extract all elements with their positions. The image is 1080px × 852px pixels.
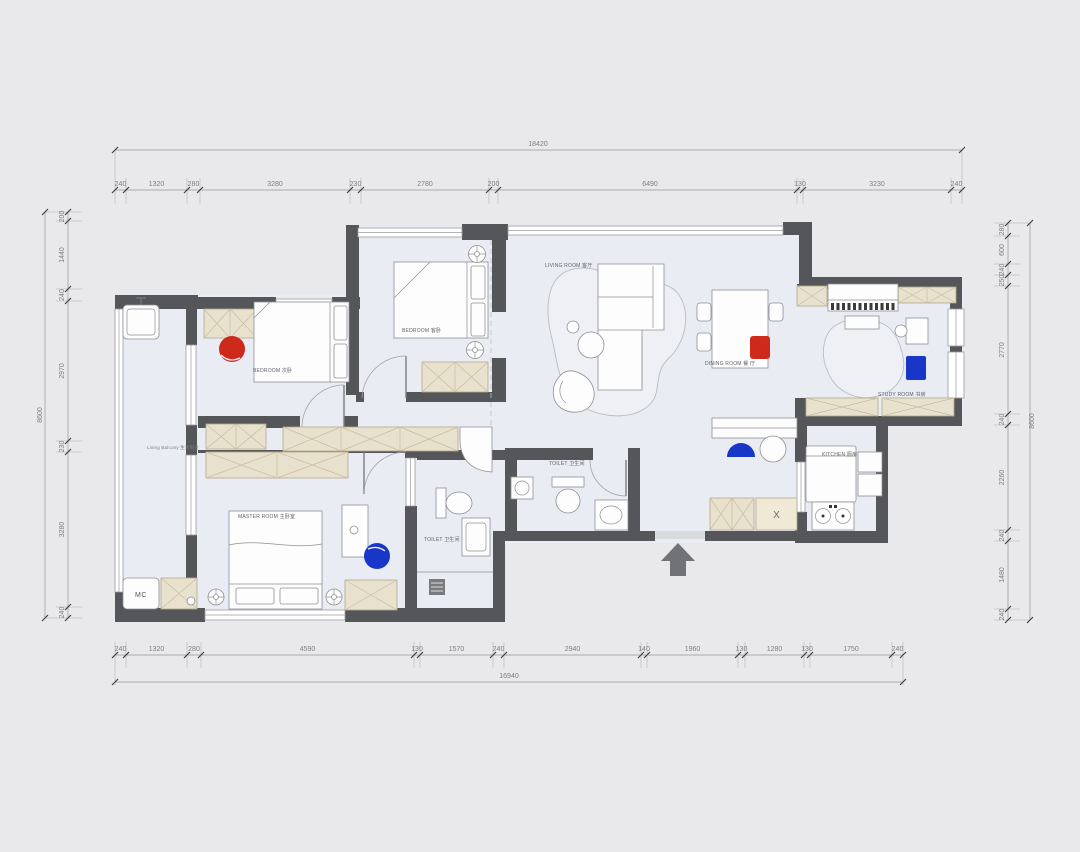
dimension-chain-left: 8600 200 1440 240 2970 230 3280 240 [37,209,82,621]
dim: 3280 [267,181,283,188]
washing-machine-marker: MC [135,592,147,599]
red-chair [750,336,770,359]
dim: 1320 [149,646,165,653]
bedside-lamp-icon [326,589,342,605]
room-label-bedroom-left: BEDROOM 次卧 [253,367,292,374]
dim: 240 [951,181,963,188]
dimension-chain-top: 18420 240 1320 280 3280 230 2780 200 649… [112,141,965,204]
room-label-master: MASTER ROOM 主卧室 [238,513,295,520]
room-label-bedroom-top: BEDROOM 客卧 [402,327,441,334]
ceiling-fan-icon [467,342,484,359]
dim: 2260 [999,470,1006,486]
dim: 1570 [449,646,465,653]
room-label-dining: DINING ROOM 餐 厅 [705,360,755,367]
dim: 240 [999,530,1006,542]
dim: 130 [411,646,423,653]
floor-plan-page: X MC [0,0,1080,852]
dim: 240 [999,609,1006,621]
dim: 130 [794,181,806,188]
fridge-marker: X [773,510,780,521]
dim: 6490 [642,181,658,188]
room-label-kitchen: KITCHEN 厨房 [822,451,857,458]
dim: 1280 [767,646,783,653]
dim: 240 [115,181,127,188]
red-chair [219,336,245,362]
dim: 240 [59,607,66,619]
dim: 200 [59,211,66,223]
dim: 130 [801,646,813,653]
dim: 280 [188,181,200,188]
entry-arrow-icon [661,543,695,576]
dim: 1320 [149,181,165,188]
dim: 1440 [59,247,66,263]
dim: 3230 [869,181,885,188]
dim: 1480 [999,567,1006,583]
dim: 230 [59,441,66,453]
dim: 2940 [565,646,581,653]
dim-right-total: 8600 [1029,413,1036,429]
room-label-study: STUDY ROOM 书房 [878,391,926,398]
dim: 240 [59,289,66,301]
bedside-lamp-icon [208,589,224,605]
dim: 240 [999,264,1006,276]
room-label-living-balcony: Living Balcony 生活阳台 [147,444,199,451]
dim: 2770 [999,342,1006,358]
dim: 250 [999,275,1006,287]
dim: 240 [999,414,1006,426]
dim-left-total: 8600 [37,407,44,423]
dim: 1960 [685,646,701,653]
dim: 600 [999,244,1006,256]
dim: 240 [493,646,505,653]
dim: 130 [736,646,748,653]
blue-chair [906,356,926,380]
dimension-chain-bottom: 16940 240 1320 280 4590 130 1570 240 294… [112,642,906,685]
room-label-living: LIVING ROOM 客厅 [545,262,593,269]
floor-plan-drawing: X MC [0,0,1080,852]
dimension-chain-right: 8600 280 600 240 250 2770 240 2260 240 1… [994,220,1036,623]
dim: 280 [188,646,200,653]
dim: 4590 [300,646,316,653]
room-label-toilet-guest: TOILET 卫生间 [549,460,585,467]
dim: 140 [638,646,650,653]
dim-top-total: 18420 [528,141,548,148]
dim: 240 [892,646,904,653]
room-label-toilet-master: TOILET 卫生间 [424,536,460,543]
dim: 200 [488,181,500,188]
ceiling-fan-icon [469,246,486,263]
dim: 3280 [59,522,66,538]
dim: 240 [115,646,127,653]
dim: 2970 [59,363,66,379]
dim: 230 [350,181,362,188]
dim-bottom-total: 16940 [499,673,519,680]
dim: 1750 [843,646,859,653]
dim: 2780 [417,181,433,188]
dim: 280 [999,224,1006,236]
